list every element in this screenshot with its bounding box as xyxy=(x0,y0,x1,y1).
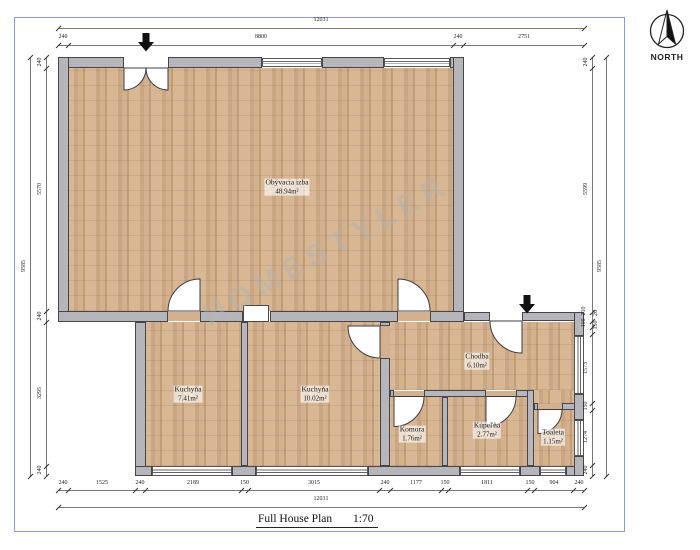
room-label-bathroom: Kúpeľňa 2.77m² xyxy=(473,422,501,439)
dim-left-seg: 3295 xyxy=(37,387,43,399)
dim-right-seg: 210 xyxy=(581,307,587,316)
room-area: 48.94m² xyxy=(264,187,309,195)
dim-left-seg: 240 xyxy=(37,466,43,475)
room-area: 6.10m² xyxy=(464,361,489,369)
dim-left-seg: 5570 xyxy=(37,183,43,195)
plan-title: Full House Plan xyxy=(258,513,332,525)
dim-right-seg: 240 xyxy=(583,466,589,475)
wall-living-bottom-4 xyxy=(430,311,464,322)
wall-living-bottom-1 xyxy=(58,311,168,322)
wall-bottom-3 xyxy=(368,466,460,477)
dimension-line xyxy=(58,507,584,508)
window-top-2 xyxy=(384,58,450,68)
wall-top-2 xyxy=(168,57,262,68)
room-name: Chodba xyxy=(464,353,489,362)
room-name: Kúpeľňa xyxy=(473,422,501,431)
dim-right-seg: 1274 xyxy=(583,431,589,443)
dimension-line xyxy=(30,57,31,476)
room-label-pantry: Komora 1.76m² xyxy=(399,426,426,443)
floor-hallway-ext xyxy=(534,390,574,404)
north-arrow-left-icon xyxy=(659,10,668,44)
window-bottom-bathroom xyxy=(460,466,520,476)
door-gap-pantry xyxy=(394,391,424,397)
room-name: Toaleta xyxy=(541,429,565,438)
plan-scale: 1:70 xyxy=(353,513,373,525)
room-area: 10.02m² xyxy=(300,394,329,402)
dim-bottom-seg: 1177 xyxy=(410,480,422,486)
dim-bottom-seg: 904 xyxy=(550,480,559,486)
room-area: 1.15m² xyxy=(541,437,565,445)
dim-right-overall: 9585 xyxy=(597,260,603,272)
wall-top-3 xyxy=(322,57,384,68)
dim-right-seg: 150 xyxy=(583,402,589,411)
dim-top-seg: 240 xyxy=(59,34,68,40)
window-top-1 xyxy=(262,58,322,68)
dim-left-seg: 240 xyxy=(37,312,43,321)
dim-top-overall: 12031 xyxy=(314,17,329,23)
door-gap-entrance-top xyxy=(124,58,168,68)
dim-top-seg: 8800 xyxy=(255,34,267,40)
door-gap-bathroom xyxy=(486,391,516,397)
dim-right-seg: 5599 xyxy=(583,183,589,195)
room-label-kitchen-1: Kuchyňa 7.41m² xyxy=(173,386,202,403)
dim-bottom-seg: 2189 xyxy=(187,480,199,486)
wall-hallway-top-1 xyxy=(464,312,491,321)
north-label: NORTH xyxy=(651,52,684,62)
dimension-line xyxy=(58,28,584,29)
window-bottom-kitchen1 xyxy=(152,466,232,476)
room-label-kitchen-2: Kuchyňa 10.02m² xyxy=(300,386,329,403)
dimension-line xyxy=(58,490,584,491)
dimension-line xyxy=(606,57,607,476)
dim-bottom-seg: 240 xyxy=(381,480,390,486)
wall-kitchen-partition xyxy=(241,322,248,466)
dim-bottom-seg: 240 xyxy=(136,480,145,486)
dim-bottom-overall: 12031 xyxy=(314,496,329,502)
wall-bottom-4 xyxy=(520,466,540,477)
dim-bottom-seg: 1811 xyxy=(481,480,493,486)
wall-living-bottom-3 xyxy=(270,311,398,322)
dim-bottom-seg: 240 xyxy=(59,480,68,486)
dimension-line xyxy=(46,57,47,476)
north-arrow-right-icon xyxy=(667,10,676,44)
north-circle-icon xyxy=(651,15,684,48)
window-bottom-kitchen2 xyxy=(256,466,368,476)
room-name: Kuchyňa xyxy=(300,386,329,395)
door-gap-entrance-hallway xyxy=(490,313,522,321)
dimension-line xyxy=(58,45,584,46)
room-name: Kuchyňa xyxy=(173,386,202,395)
wall-living-right xyxy=(453,57,464,312)
dim-bottom-seg: 150 xyxy=(441,480,450,486)
dim-top-seg: 2751 xyxy=(518,34,530,40)
dim-bottom-seg: 240 xyxy=(575,480,584,486)
title-underline xyxy=(256,527,378,528)
dim-bottom-seg: 150 xyxy=(526,480,535,486)
wall-bottom-1 xyxy=(135,466,152,477)
wall-kitchen-left xyxy=(135,322,146,477)
room-name: Komora xyxy=(399,426,426,435)
dim-right-seg: 150 xyxy=(593,321,599,330)
door-gap-kitchen2-hallway xyxy=(380,326,390,358)
dim-bottom-seg: 1525 xyxy=(96,480,108,486)
window-bottom-toilet xyxy=(540,466,566,476)
room-area: 1.76m² xyxy=(399,434,426,442)
dim-right-seg: 116 xyxy=(581,319,587,328)
dim-right-seg: 1573 xyxy=(583,362,589,374)
door-gap-kitchen1 xyxy=(168,312,200,322)
dim-left-seg: 240 xyxy=(37,58,43,67)
room-area: 7.41m² xyxy=(173,394,202,402)
dimension-line xyxy=(592,57,593,476)
wall-bottom-2 xyxy=(232,466,256,477)
wall-hallway-bottom-2 xyxy=(424,390,486,397)
door-gap-toilet xyxy=(538,404,562,410)
wall-pantry-bathroom xyxy=(442,397,449,466)
wall-left-exterior xyxy=(58,57,69,322)
room-label-hallway: Chodba 6.10m² xyxy=(464,353,489,370)
room-label-toilet: Toaleta 1.15m² xyxy=(541,429,565,446)
wall-kitchen2-right-2 xyxy=(380,358,391,466)
dim-left-overall: 9585 xyxy=(21,260,27,272)
room-area: 2.77m² xyxy=(473,430,501,438)
room-label-living-room: Obývacia izba 48.94m² xyxy=(264,179,309,196)
door-gap-living-hallway xyxy=(398,312,430,322)
dim-right-seg: 26 xyxy=(593,310,599,316)
dim-bottom-seg: 150 xyxy=(240,480,249,486)
dim-top-seg: 240 xyxy=(454,34,463,40)
dim-right-seg: 240 xyxy=(583,58,589,67)
wall-bathroom-toilet xyxy=(527,390,534,466)
floor-plan-page: HOMESTYLER Obývacia izba 48.94m² Kuchyňa… xyxy=(0,0,700,550)
room-name: Obývacia izba xyxy=(264,179,309,188)
dim-bottom-seg: 3015 xyxy=(308,480,320,486)
